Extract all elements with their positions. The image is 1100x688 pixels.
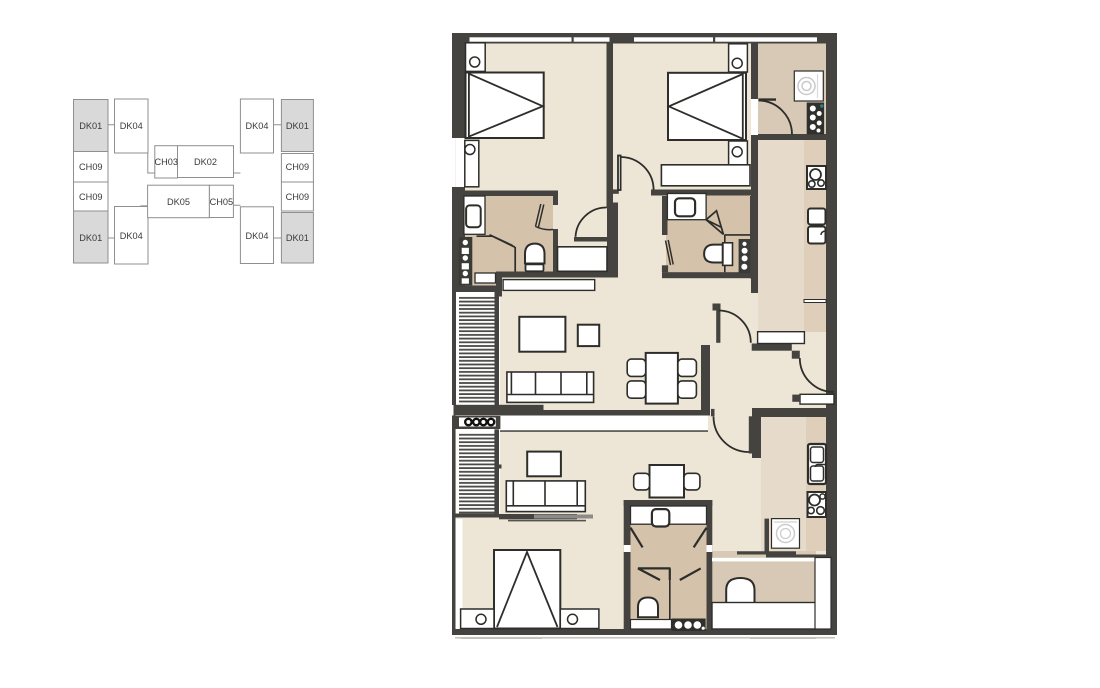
svg-text:CH09: CH09 xyxy=(79,192,103,202)
svg-text:DK04: DK04 xyxy=(246,231,269,241)
svg-text:CH09: CH09 xyxy=(286,192,310,202)
svg-text:DK02: DK02 xyxy=(194,157,217,167)
svg-text:CH09: CH09 xyxy=(286,162,310,172)
svg-text:DK01: DK01 xyxy=(286,233,309,243)
svg-text:DK04: DK04 xyxy=(120,231,143,241)
svg-text:DK01: DK01 xyxy=(79,233,102,243)
svg-text:CH03: CH03 xyxy=(154,157,178,167)
svg-text:DK01: DK01 xyxy=(79,121,102,131)
svg-text:DK01: DK01 xyxy=(286,121,309,131)
svg-text:DK04: DK04 xyxy=(246,121,269,131)
svg-text:CH05: CH05 xyxy=(210,197,234,207)
svg-text:DK05: DK05 xyxy=(167,197,190,207)
svg-text:DK04: DK04 xyxy=(120,121,143,131)
svg-text:CH09: CH09 xyxy=(79,162,103,172)
